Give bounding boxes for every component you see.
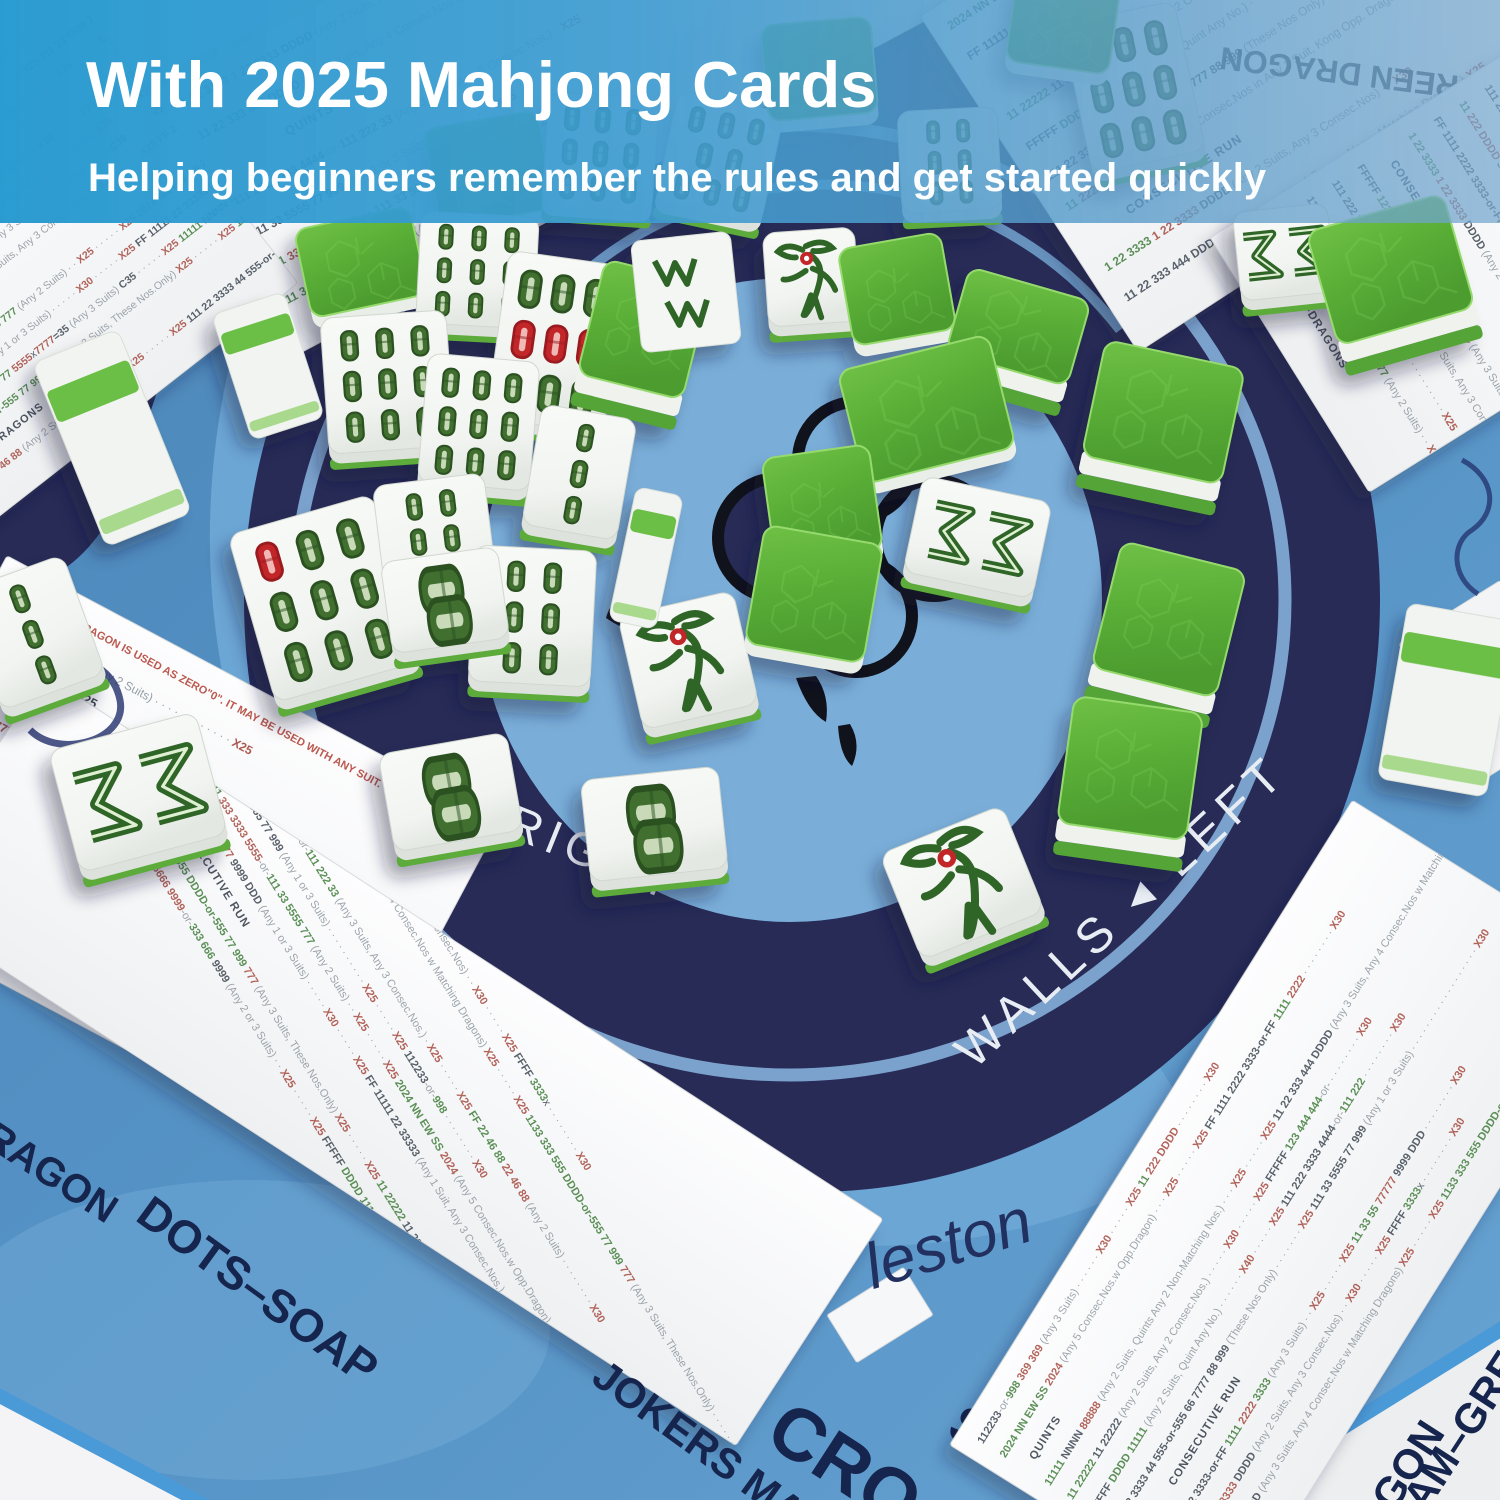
svg-text:With 2025 Mahjong Cards: With 2025 Mahjong Cards [86,48,876,121]
svg-text:Helping beginners remember the: Helping beginners remember the rules and… [88,156,1267,200]
